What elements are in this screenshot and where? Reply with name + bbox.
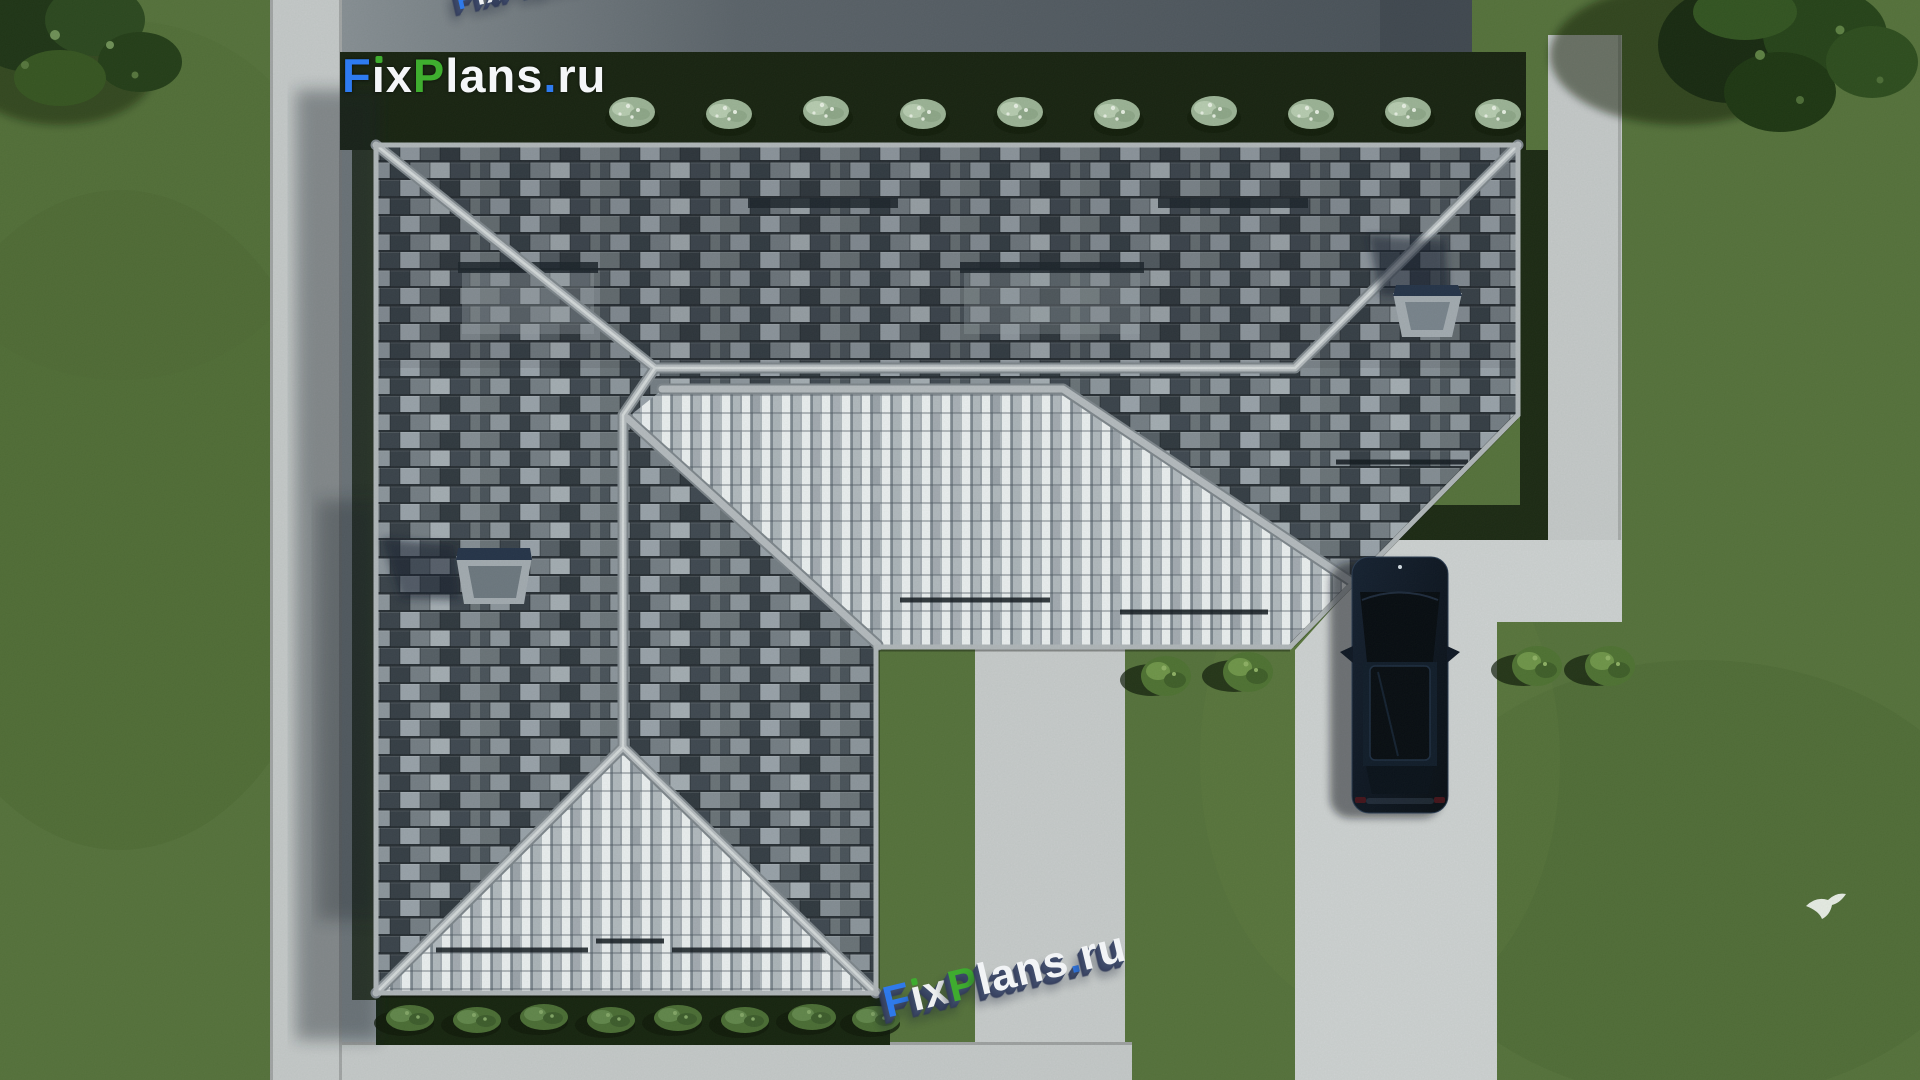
sidewalk-bottom	[342, 1042, 1132, 1080]
fixplans-logo: FıxPlans.ru	[342, 52, 606, 99]
sidewalk-right	[1548, 35, 1622, 622]
scene-canvas	[0, 0, 1920, 1080]
car-antenna	[1398, 565, 1402, 569]
aerial-render: FıxPlans.ru FıxPlans.ru FıxPlans.ru	[0, 0, 1920, 1080]
car-taillight-right	[1434, 797, 1445, 803]
skylight-left	[456, 548, 532, 604]
car-rear-window	[1366, 766, 1434, 794]
car-taillight-left	[1355, 797, 1366, 803]
walkway-center	[975, 647, 1125, 1080]
road-tree-shadow	[1380, 0, 1472, 58]
car-windshield	[1360, 592, 1440, 662]
car	[1330, 557, 1460, 818]
skylight-right	[1393, 285, 1462, 337]
hedge-right	[1520, 150, 1548, 510]
house-shadow	[296, 90, 380, 1040]
